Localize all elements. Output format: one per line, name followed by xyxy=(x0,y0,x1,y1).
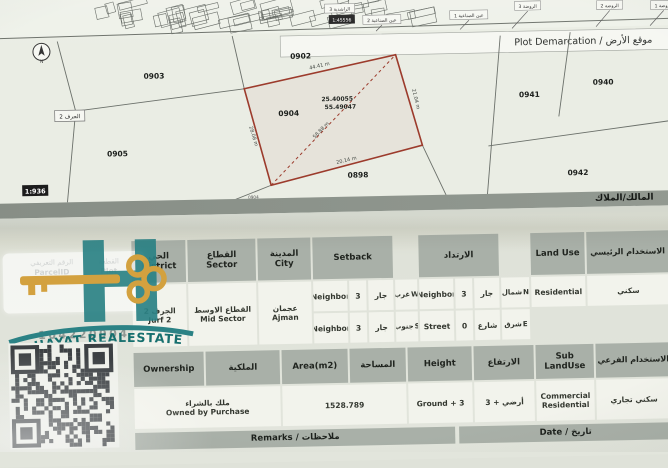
document-photo: الراشدية 3 1:45556 عين الصناعية 2 عين ال… xyxy=(0,0,668,468)
table-band-1: الحيDistrict القطاعSector المدينةCity Se… xyxy=(131,230,668,347)
header-area-ar: المساحة xyxy=(349,348,406,383)
owner-band-label: المالك/الملاك xyxy=(595,193,654,204)
svg-text:0942: 0942 xyxy=(567,168,588,177)
svg-text:الروضة 2: الروضة 2 xyxy=(600,3,618,9)
setback-west-type-ar: جار xyxy=(368,280,394,310)
cell-city: عجمانAjman xyxy=(258,281,312,344)
svg-text:الجرف 2: الجرف 2 xyxy=(59,114,80,120)
header-height-en: Height xyxy=(407,346,472,381)
setback-west-type: Neighbor xyxy=(313,281,348,312)
setback-east-direction: شرقE xyxy=(502,309,531,340)
svg-text:0941: 0941 xyxy=(519,90,540,99)
plot-coordinates: 25.40055 55.49047 xyxy=(321,96,356,112)
header-sub-land-use: Sub LandUse xyxy=(535,344,594,379)
map-scale-chip: 1:936 xyxy=(22,185,48,197)
setback-west-value: 3 xyxy=(349,280,367,310)
setback-south-direction: جنوبS xyxy=(396,311,419,341)
header-ownership-ar: الملكية xyxy=(205,350,280,385)
cell-land-use: Residential xyxy=(531,276,586,307)
header-sub-use-ar: الاستخدام الفرعي xyxy=(595,342,668,377)
svg-text:0940: 0940 xyxy=(593,77,614,86)
svg-text:1:936: 1:936 xyxy=(25,187,46,195)
header-land-use: Land Use xyxy=(530,232,585,275)
setback-east-type: Street xyxy=(420,311,455,342)
target-plot-outline xyxy=(244,54,424,186)
overview-scale-chip: 1:45556 xyxy=(332,17,351,23)
setback-south-type: Neighbor xyxy=(314,313,349,344)
svg-text:0903: 0903 xyxy=(143,71,164,80)
svg-text:الروضة 3: الروضة 3 xyxy=(518,4,536,10)
svg-text:0904: 0904 xyxy=(278,109,299,118)
svg-text:0898: 0898 xyxy=(347,170,368,179)
header-area-en: Area(m2) xyxy=(281,349,348,384)
header-gap-2 xyxy=(500,233,529,276)
cell-height-ar: أرضي + 3 xyxy=(474,381,535,422)
cell-main-use: سكني xyxy=(587,274,668,306)
cell-area: 1528.789 xyxy=(282,384,407,426)
map-canvas: الراشدية 3 1:45556 عين الصناعية 2 عين ال… xyxy=(0,0,668,219)
svg-text:0905: 0905 xyxy=(107,149,128,158)
setback-east-value: 0 xyxy=(456,310,474,340)
header-irtidad: الارتداد xyxy=(418,234,499,278)
svg-text:25.40055: 25.40055 xyxy=(321,96,353,104)
header-height-ar: الارتفاع xyxy=(473,345,534,380)
north-compass-icon: N xyxy=(33,43,50,65)
setback-north-value: 3 xyxy=(455,278,473,308)
cell-sub-use-ar: سكني تجاري xyxy=(596,378,668,419)
cell-height-en: Ground + 3 xyxy=(408,382,473,423)
district-chip: الجرف 2 xyxy=(55,110,85,122)
header-gap-1 xyxy=(394,235,417,277)
header-setback: Setback xyxy=(312,236,393,280)
setback-east-type-ar: شارع xyxy=(475,310,501,340)
cell-sub-land-use: Commercial Residential xyxy=(536,380,595,421)
header-city: المدينةCity xyxy=(257,237,311,280)
setback-south-value: 3 xyxy=(350,312,368,342)
plot-data-table: الحيDistrict القطاعSector المدينةCity Se… xyxy=(131,230,668,450)
setback-north-type: Neighbor xyxy=(419,279,454,310)
table-band-2: Ownership الملكية Area(m2) المساحة Heigh… xyxy=(134,342,668,429)
svg-text:N: N xyxy=(40,59,43,65)
setback-north-direction: شمالN xyxy=(501,277,530,308)
setback-west-direction: غربW xyxy=(395,279,418,309)
svg-text:عين الصناعية 2: عين الصناعية 2 xyxy=(367,17,397,24)
svg-text:0902: 0902 xyxy=(290,51,311,60)
cell-ownership: ملك بالشراءOwned by Purchase xyxy=(134,386,281,429)
setback-north-type-ar: جار xyxy=(474,278,500,308)
plot-demarcation-map: الراشدية 3 1:45556 عين الصناعية 2 عين ال… xyxy=(0,0,668,204)
svg-text:55.49047: 55.49047 xyxy=(325,104,357,112)
qr-code xyxy=(8,341,119,449)
svg-text:عين الصناعية 1: عين الصناعية 1 xyxy=(454,13,484,20)
header-main-use: الاستخدام الرئيسي xyxy=(586,230,668,274)
svg-text:الروضة 1: الروضة 1 xyxy=(654,3,668,9)
svg-text:الراشدية 3: الراشدية 3 xyxy=(329,6,350,12)
setback-south-type-ar: جار xyxy=(369,312,395,342)
